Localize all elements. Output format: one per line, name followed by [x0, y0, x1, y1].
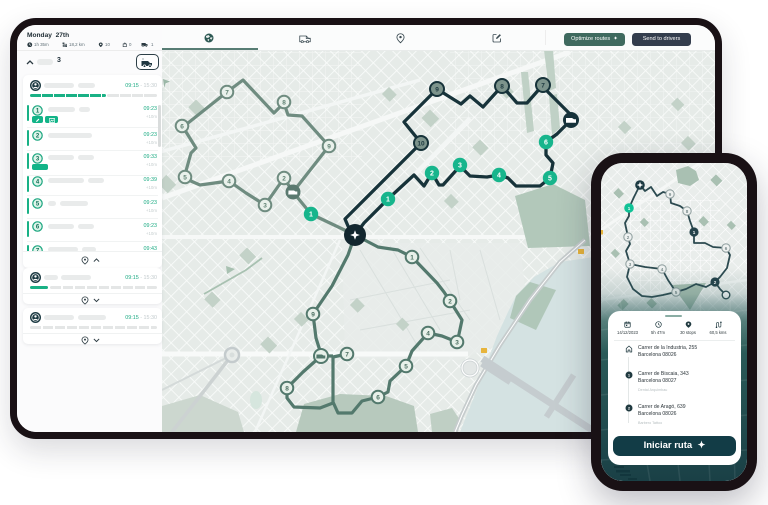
svg-text:5: 5: [183, 174, 187, 181]
svg-text:8: 8: [282, 99, 286, 106]
svg-text:4: 4: [426, 330, 430, 337]
svg-text:3: 3: [458, 163, 462, 170]
svg-text:6: 6: [376, 394, 380, 401]
svg-text:8: 8: [500, 83, 504, 90]
svg-text:2: 2: [448, 298, 452, 305]
svg-text:7: 7: [225, 89, 229, 96]
svg-text:1: 1: [386, 197, 390, 204]
svg-text:1: 1: [628, 206, 631, 211]
svg-text:2: 2: [282, 175, 286, 182]
svg-text:9: 9: [311, 311, 315, 318]
svg-text:4: 4: [497, 173, 501, 180]
svg-text:5: 5: [548, 176, 552, 183]
svg-text:8: 8: [686, 209, 689, 214]
svg-text:6: 6: [725, 246, 728, 251]
svg-text:1: 1: [309, 212, 313, 219]
svg-text:6: 6: [544, 140, 548, 147]
svg-text:2: 2: [430, 171, 434, 178]
svg-text:5: 5: [404, 363, 408, 370]
svg-text:1: 1: [693, 230, 696, 235]
svg-text:1: 1: [410, 254, 414, 261]
svg-text:6: 6: [180, 123, 184, 130]
svg-text:2: 2: [627, 235, 630, 240]
svg-text:4: 4: [227, 178, 231, 185]
svg-text:8: 8: [285, 385, 289, 392]
svg-text:9: 9: [435, 86, 439, 93]
svg-text:9: 9: [669, 192, 672, 197]
svg-text:3: 3: [455, 339, 459, 346]
svg-text:10: 10: [417, 140, 425, 147]
svg-text:7: 7: [541, 82, 545, 89]
svg-text:3: 3: [263, 202, 267, 209]
svg-text:9: 9: [327, 143, 331, 150]
svg-text:7: 7: [345, 351, 349, 358]
svg-text:3: 3: [629, 262, 632, 267]
